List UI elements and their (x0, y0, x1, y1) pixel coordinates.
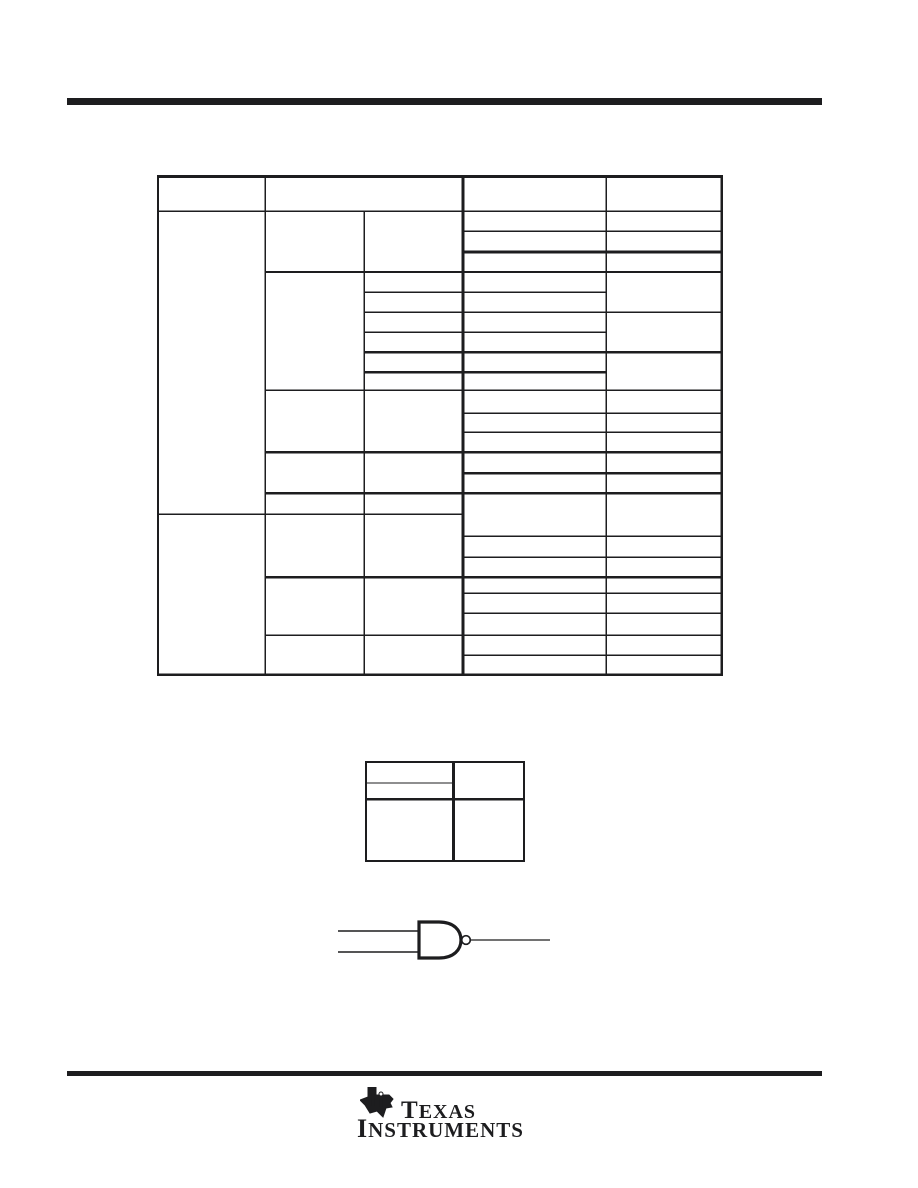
ti-logo: TEXAS INSTRUMENTS (356, 1085, 576, 1141)
function-table-lines (365, 761, 525, 862)
function-table (365, 761, 525, 862)
logo-word-instruments: INSTRUMENTS (357, 1116, 524, 1142)
top-horizontal-rule (67, 98, 822, 105)
nand-gate-symbol (338, 915, 553, 965)
gate-inverter-bubble (462, 936, 471, 945)
bottom-horizontal-rule (67, 1071, 822, 1076)
table-horizontal-lines (157, 177, 723, 675)
ordering-information-table (157, 175, 723, 676)
table-vertical-lines (158, 175, 722, 676)
gate-body (419, 922, 461, 958)
